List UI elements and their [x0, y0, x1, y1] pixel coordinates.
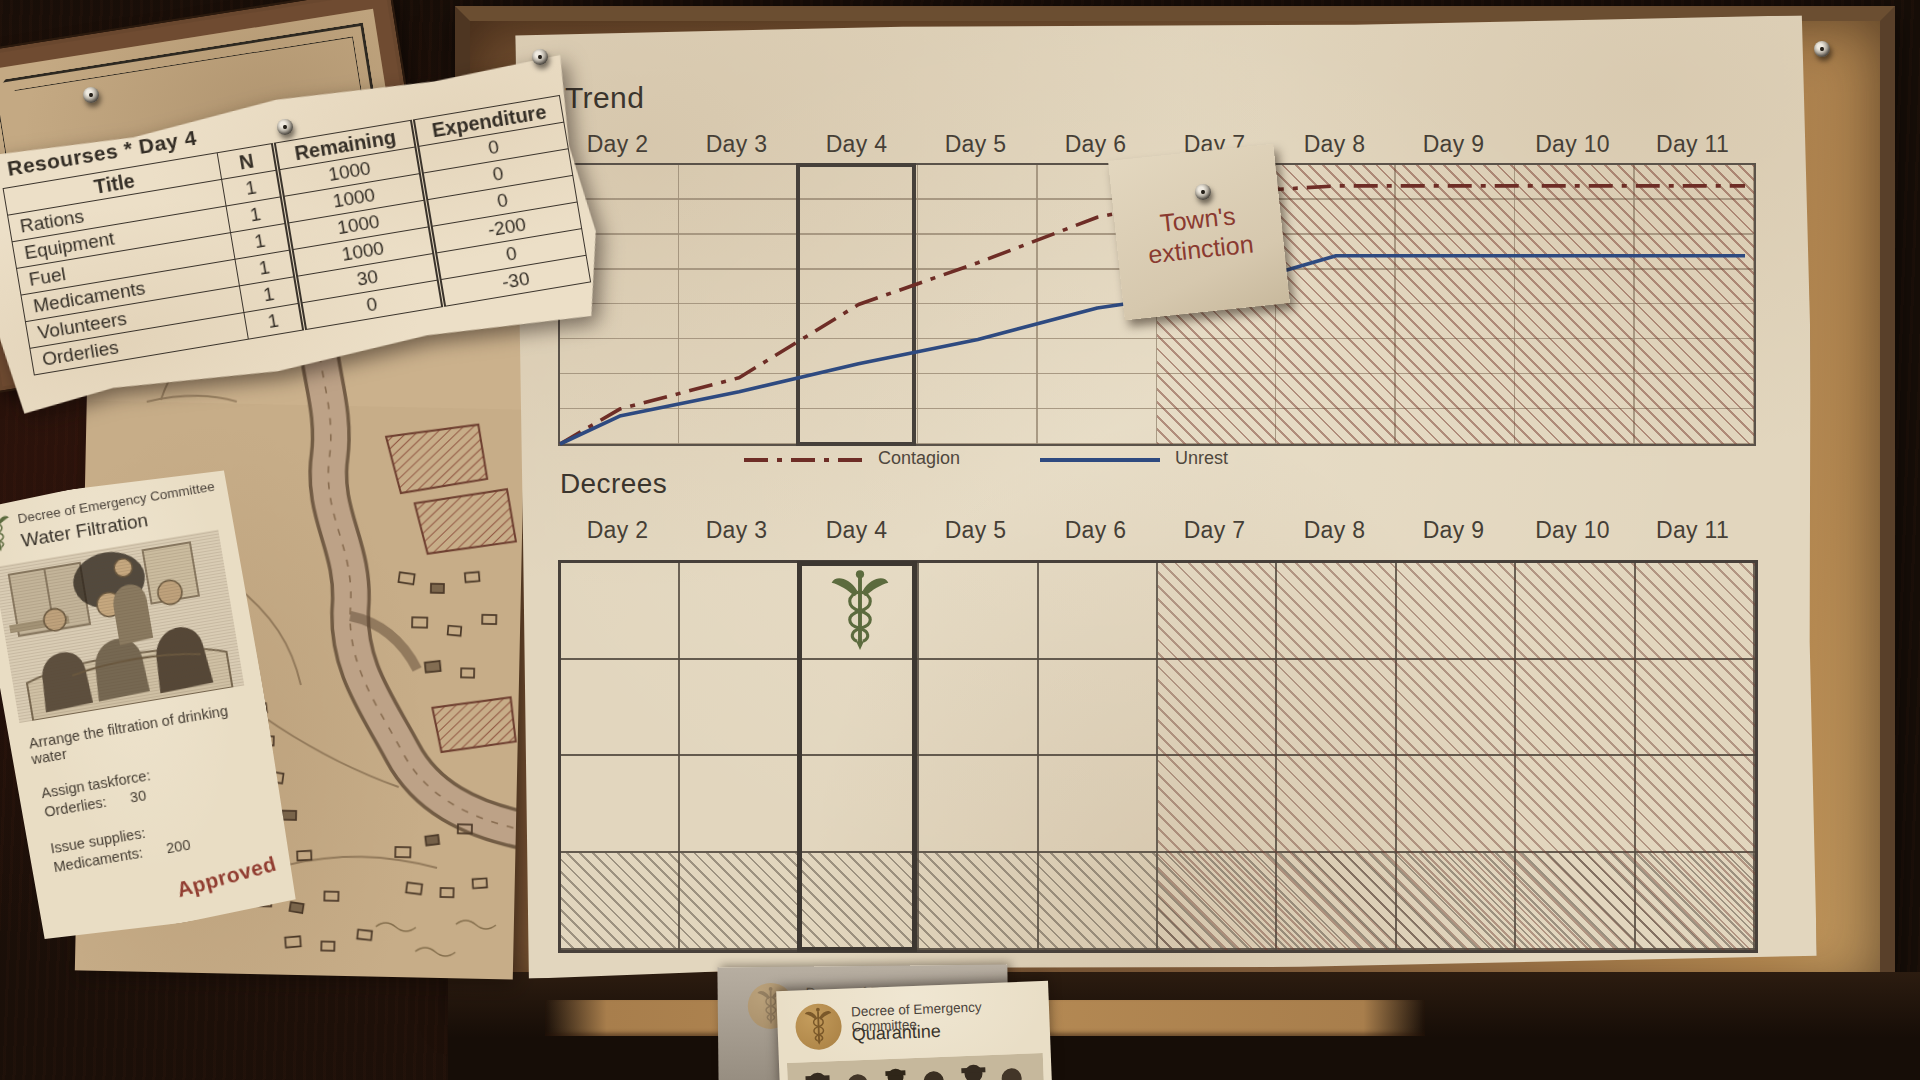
committee-seal	[795, 1003, 843, 1051]
decrees-day-label: Day 10	[1513, 517, 1632, 544]
push-pin	[1814, 41, 1830, 57]
contagion-legend-line	[742, 448, 864, 472]
extinction-note[interactable]: Town's extinction	[1108, 144, 1290, 320]
trend-title: Trend	[565, 81, 644, 115]
quarantine-illustration	[787, 1053, 1044, 1080]
trend-day-label: Day 6	[1036, 131, 1155, 158]
decrees-locked-row-hatch	[561, 853, 1755, 950]
decrees-day-label: Day 6	[1036, 517, 1155, 544]
decrees-day-label: Day 9	[1394, 517, 1513, 544]
caduceus-icon	[0, 510, 15, 556]
caduceus-icon	[828, 568, 892, 654]
trend-day-label: Day 11	[1633, 131, 1752, 158]
push-pin	[532, 49, 548, 65]
decrees-day-label: Day 11	[1633, 517, 1752, 544]
contagion-legend-label: Contagion	[878, 448, 960, 469]
decrees-title: Decrees	[560, 468, 667, 500]
trend-day-label: Day 8	[1275, 131, 1394, 158]
trend-day-label: Day 3	[677, 131, 796, 158]
supplies-value: 200	[165, 836, 192, 859]
decrees-day-label: Day 5	[916, 517, 1035, 544]
push-pin	[1195, 184, 1211, 200]
quarantine-decree-card[interactable]: Decree of Emergency Committee Quarantine	[776, 981, 1052, 1080]
trend-day-label: Day 10	[1513, 131, 1632, 158]
trend-day-label: Day 4	[797, 131, 916, 158]
trend-day-label: Day 5	[916, 131, 1035, 158]
taskforce-value: 30	[129, 786, 148, 807]
unrest-legend-label: Unrest	[1175, 448, 1228, 469]
extinction-note-text: Town's extinction	[1114, 195, 1285, 272]
decrees-day-label: Day 2	[558, 517, 677, 544]
planning-board-screen: Trend Day 2 Day 3 Day 4 Day 5 Day 6 Day …	[0, 0, 1920, 1080]
decree-illustration-texture	[0, 530, 244, 723]
decree-title: Quarantine	[852, 1021, 942, 1045]
unrest-legend-line	[1038, 448, 1162, 472]
decrees-day-label: Day 7	[1155, 517, 1274, 544]
push-pin	[83, 87, 99, 103]
decrees-day-label: Day 4	[797, 517, 916, 544]
decree-taskforce-block: Assign taskforce: Orderlies:30	[40, 766, 155, 822]
caduceus-icon	[804, 1006, 834, 1047]
decrees-day-label: Day 3	[677, 517, 796, 544]
decrees-grid[interactable]	[558, 560, 1758, 953]
decrees-day-label: Day 8	[1275, 517, 1394, 544]
approved-stamp: Approved	[174, 852, 279, 902]
decree-supplies-block: Issue supplies: Medicaments:200	[49, 817, 192, 877]
push-pin	[277, 119, 293, 135]
trend-day-label: Day 9	[1394, 131, 1513, 158]
placed-decree-water-filtration[interactable]	[828, 568, 892, 654]
